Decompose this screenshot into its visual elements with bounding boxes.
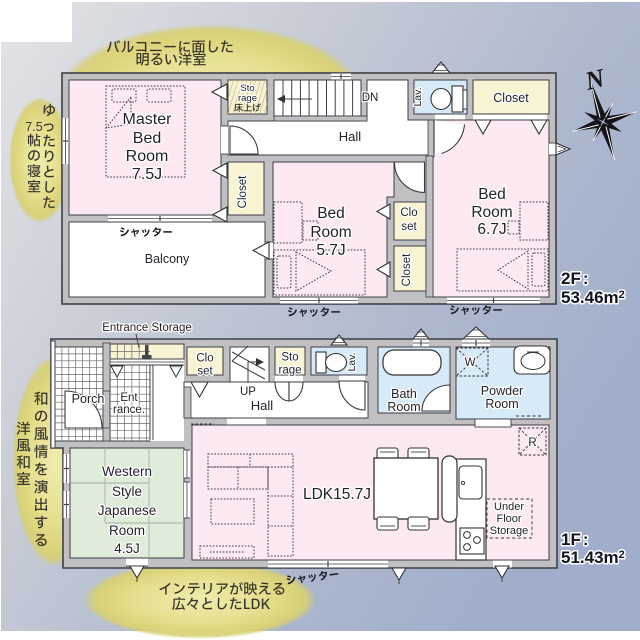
svg-text:Storage: Storage bbox=[490, 525, 529, 537]
svg-text:Porch: Porch bbox=[72, 392, 105, 406]
svg-text:Balcony: Balcony bbox=[145, 252, 190, 266]
svg-text:Room: Room bbox=[471, 204, 512, 221]
svg-text:Room: Room bbox=[387, 400, 420, 414]
svg-text:rage: rage bbox=[238, 93, 257, 104]
svg-text:Bath: Bath bbox=[391, 387, 417, 401]
svg-text:Closet: Closet bbox=[493, 91, 529, 105]
svg-text:Powder: Powder bbox=[481, 384, 523, 398]
svg-text:Lav.: Lav. bbox=[412, 87, 424, 106]
svg-text:rage: rage bbox=[278, 365, 301, 377]
svg-text:Bed: Bed bbox=[133, 130, 161, 147]
svg-text:7.5J: 7.5J bbox=[132, 166, 162, 183]
svg-text:Lav.: Lav. bbox=[346, 352, 358, 371]
svg-text:Room: Room bbox=[310, 224, 351, 241]
svg-text:Ent: Ent bbox=[120, 392, 138, 404]
svg-text:Clo: Clo bbox=[400, 207, 417, 219]
svg-text:W: W bbox=[465, 357, 476, 369]
svg-text:Hall: Hall bbox=[339, 129, 362, 144]
svg-text:UP: UP bbox=[240, 386, 256, 398]
svg-text:4.5J: 4.5J bbox=[114, 541, 140, 556]
svg-text:set: set bbox=[401, 221, 417, 233]
svg-text:53.46m2: 53.46m2 bbox=[561, 288, 625, 307]
svg-text:Master: Master bbox=[123, 111, 173, 128]
svg-text:Bed: Bed bbox=[317, 205, 345, 222]
svg-text:6.7J: 6.7J bbox=[477, 221, 506, 238]
svg-text:R: R bbox=[528, 437, 536, 449]
svg-text:Style: Style bbox=[112, 484, 142, 499]
svg-text:Japanese: Japanese bbox=[98, 503, 157, 518]
svg-text:Under: Under bbox=[494, 501, 524, 513]
svg-text:5.7J: 5.7J bbox=[316, 242, 345, 259]
svg-text:1F:: 1F: bbox=[561, 530, 589, 549]
svg-text:LDK15.7J: LDK15.7J bbox=[303, 486, 371, 503]
svg-text:DN: DN bbox=[362, 92, 379, 104]
svg-text:Closet: Closet bbox=[401, 253, 413, 286]
svg-text:set: set bbox=[197, 366, 213, 378]
svg-text:51.43m2: 51.43m2 bbox=[561, 548, 625, 567]
svg-text:Western: Western bbox=[102, 464, 152, 479]
svg-text:7.5: 7.5 bbox=[25, 120, 42, 134]
svg-text:Entrance Storage: Entrance Storage bbox=[102, 322, 192, 334]
svg-text:Floor: Floor bbox=[496, 513, 521, 525]
svg-text:rance.: rance. bbox=[113, 404, 145, 416]
svg-text:Bed: Bed bbox=[478, 186, 506, 203]
svg-text:Room: Room bbox=[485, 397, 518, 411]
svg-text:Hall: Hall bbox=[251, 398, 274, 413]
svg-text:Closet: Closet bbox=[237, 175, 249, 208]
svg-text:Sto: Sto bbox=[281, 352, 298, 364]
svg-text:Clo: Clo bbox=[196, 353, 213, 365]
svg-text:Room: Room bbox=[109, 523, 145, 538]
svg-text:Room: Room bbox=[126, 148, 169, 165]
svg-text:2F:: 2F: bbox=[561, 269, 589, 288]
